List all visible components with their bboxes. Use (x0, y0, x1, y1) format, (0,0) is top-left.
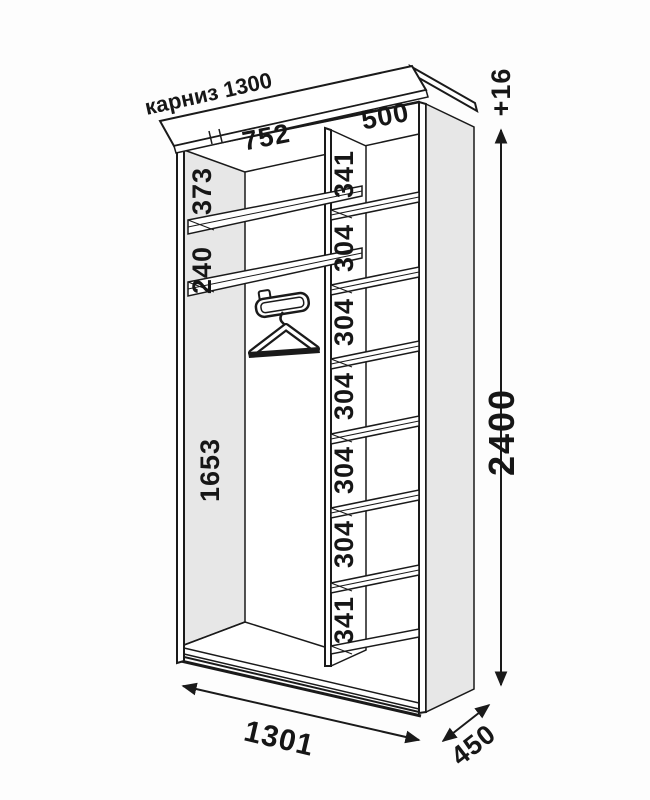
label-right-304-1: 304 (329, 224, 359, 272)
right-panel-outer-face (426, 104, 474, 712)
label-right-341-bottom: 341 (329, 596, 359, 644)
label-right-304-2: 304 (329, 298, 359, 346)
label-right-304-3: 304 (329, 372, 359, 420)
left-side-panel (177, 150, 184, 663)
right-side-panel (419, 102, 474, 713)
label-right-304-4: 304 (329, 446, 359, 494)
label-left-1653: 1653 (195, 438, 225, 502)
label-cornice-extra-16: +16 (486, 68, 516, 117)
label-left-373: 373 (187, 167, 217, 215)
right-panel-front-edge (419, 102, 426, 713)
label-height-2400: 2400 (481, 388, 522, 476)
wardrobe-dimension-diagram: карниз 1300 752 500 373 240 1653 341 304… (0, 0, 650, 800)
label-right-341-top: 341 (329, 150, 359, 198)
label-left-240: 240 (187, 246, 217, 294)
wardrobe-diagram-svg: карниз 1300 752 500 373 240 1653 341 304… (0, 0, 650, 800)
label-right-304-5: 304 (329, 520, 359, 568)
